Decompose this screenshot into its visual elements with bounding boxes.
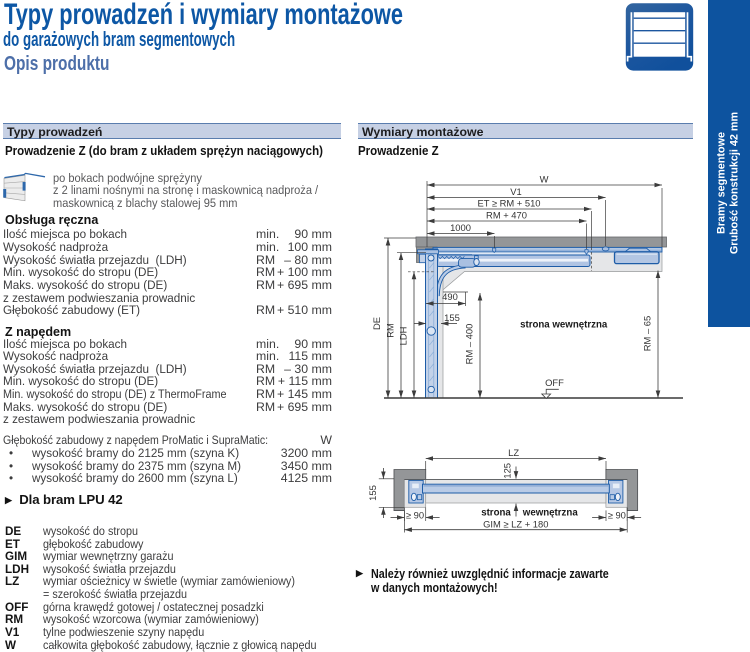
svg-text:RM – 65: RM – 65	[641, 316, 652, 351]
svg-text:ET ≥ RM + 510: ET ≥ RM + 510	[477, 197, 540, 208]
svg-text:155: 155	[367, 485, 378, 501]
svg-text:155: 155	[444, 312, 460, 323]
svg-text:490: 490	[442, 291, 458, 302]
svg-text:RM: RM	[384, 323, 395, 338]
svg-text:strona wewnętrzna: strona wewnętrzna	[520, 319, 608, 330]
svg-text:W: W	[540, 173, 549, 184]
svg-text:wewnętrzna: wewnętrzna	[522, 507, 579, 518]
svg-text:≥ 90: ≥ 90	[608, 509, 626, 520]
svg-text:DE: DE	[371, 317, 382, 330]
svg-text:LDH: LDH	[397, 327, 408, 346]
svg-text:GIM ≥ LZ + 180: GIM ≥ LZ + 180	[483, 518, 548, 529]
svg-text:LZ: LZ	[508, 447, 519, 458]
svg-text:125: 125	[502, 463, 513, 479]
svg-text:strona: strona	[481, 507, 511, 518]
svg-text:≥ 90: ≥ 90	[406, 509, 424, 520]
svg-text:OFF: OFF	[545, 377, 564, 388]
svg-text:RM + 470: RM + 470	[486, 209, 527, 220]
svg-text:V1: V1	[510, 186, 521, 197]
svg-text:RM – 400: RM – 400	[463, 324, 474, 365]
svg-text:1000: 1000	[450, 222, 471, 233]
